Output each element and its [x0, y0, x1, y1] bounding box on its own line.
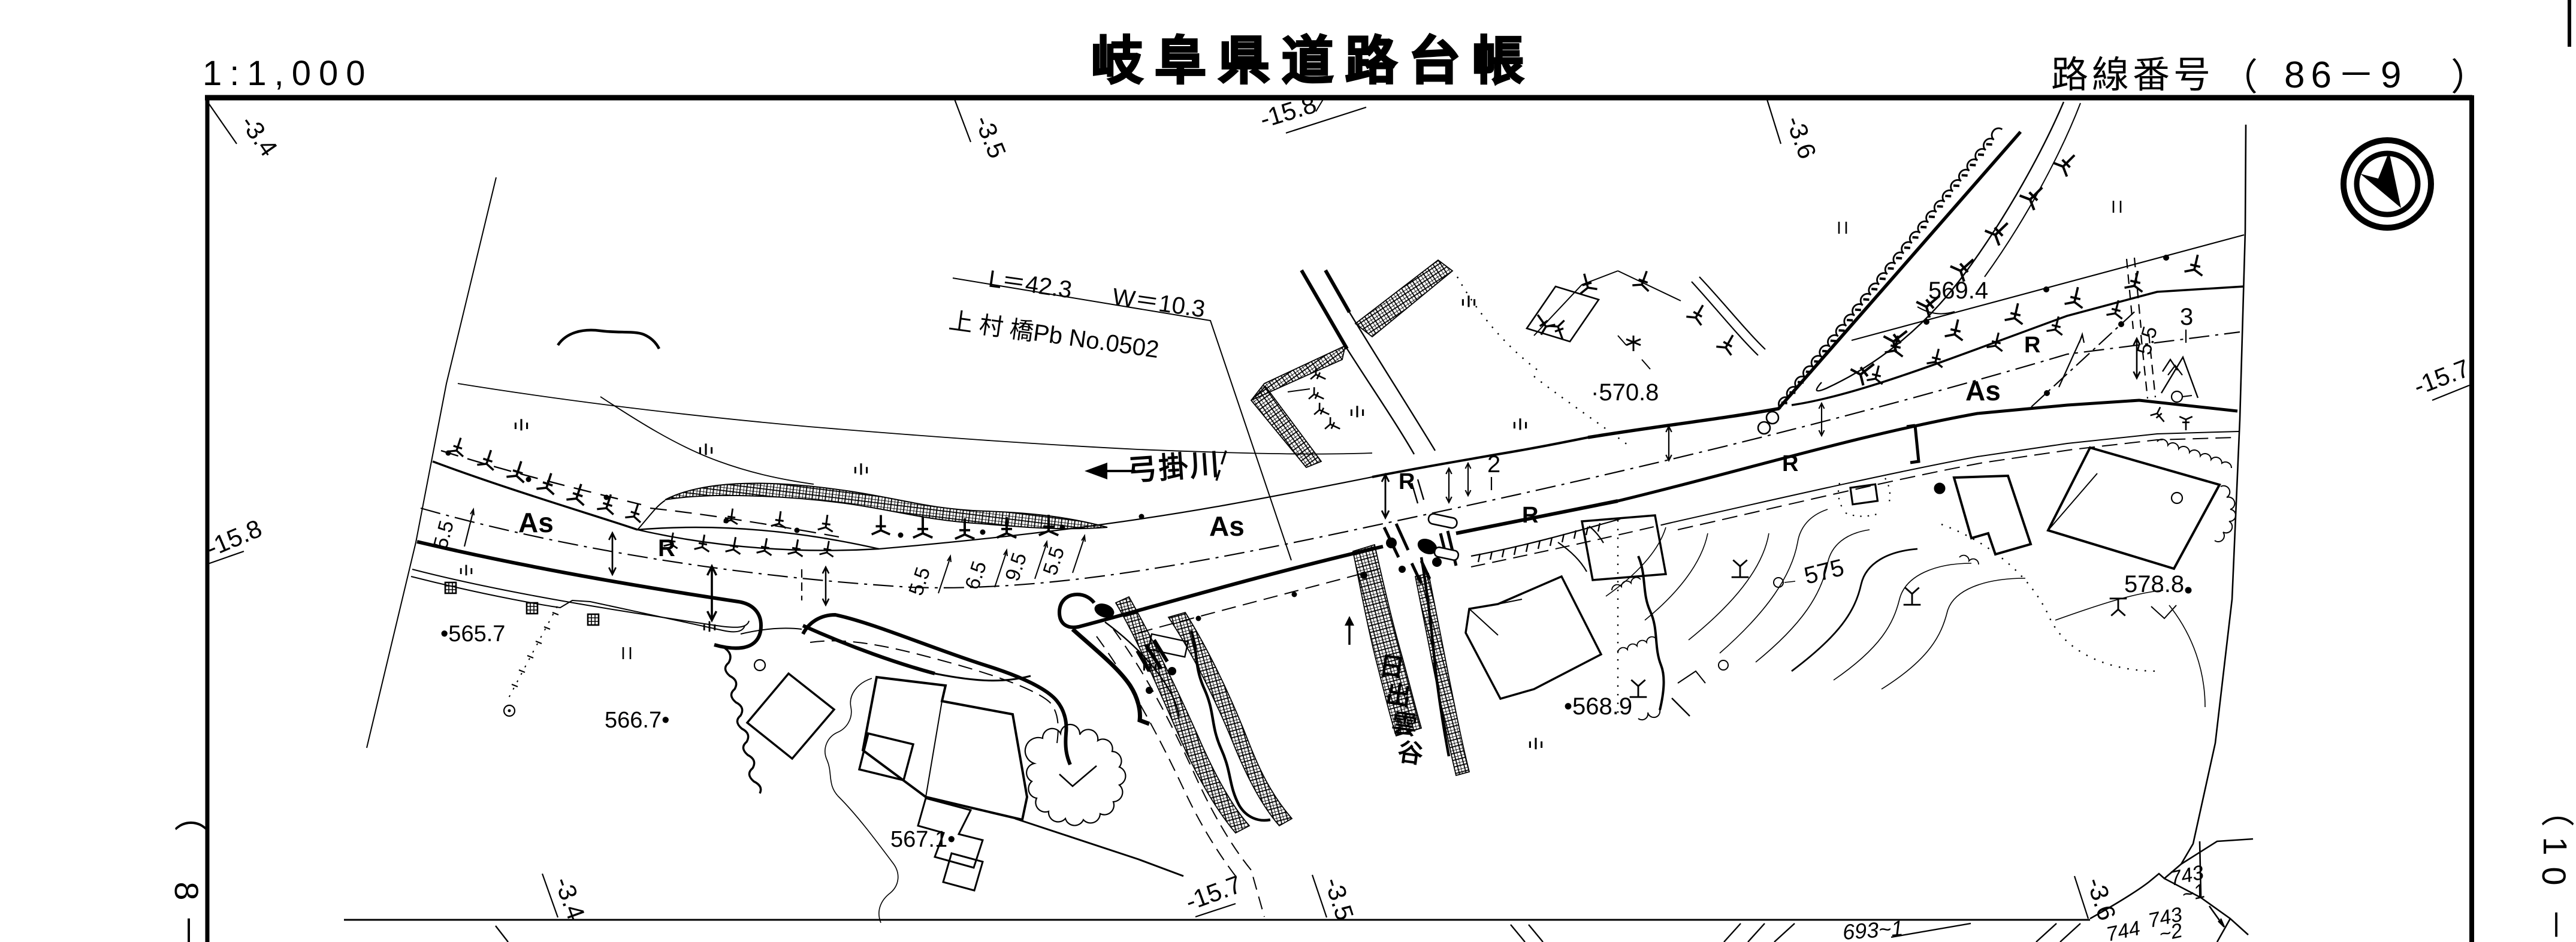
svg-text:578.8: 578.8 — [2124, 571, 2184, 597]
svg-text:－: － — [169, 914, 207, 942]
svg-text:1:1,000: 1:1,000 — [203, 54, 373, 93]
svg-text:雲: 雲 — [1390, 708, 1419, 739]
svg-text:3: 3 — [2180, 304, 2193, 330]
svg-text:~2: ~2 — [2157, 919, 2185, 942]
svg-text:2: 2 — [1487, 451, 1500, 478]
svg-text:As: As — [518, 507, 554, 538]
svg-text:0: 0 — [2535, 866, 2573, 885]
svg-text:出: 出 — [1384, 680, 1413, 711]
svg-text:弓掛川: 弓掛川 — [1127, 448, 1222, 487]
svg-text:R: R — [2024, 333, 2040, 358]
svg-text:谷: 谷 — [1396, 737, 1425, 768]
svg-text:~1: ~1 — [2180, 880, 2207, 907]
svg-text:86－9: 86－9 — [2284, 55, 2407, 96]
svg-text:（: （ — [2221, 57, 2258, 98]
svg-text:R: R — [1782, 451, 1798, 476]
svg-text:566.7•: 566.7• — [605, 708, 669, 733]
svg-text:As: As — [1209, 511, 1245, 542]
svg-text:（: （ — [171, 798, 209, 832]
svg-text:岐阜県道路台帳: 岐阜県道路台帳 — [1091, 32, 1536, 90]
svg-text:1: 1 — [2536, 837, 2574, 855]
svg-text:R: R — [1522, 503, 1538, 528]
svg-text:•568.9: •568.9 — [1564, 693, 1632, 720]
svg-text:）: ） — [2451, 57, 2488, 98]
svg-text:As: As — [1965, 375, 2001, 406]
svg-text:R: R — [658, 535, 675, 561]
svg-text:·570.8: ·570.8 — [1591, 379, 1659, 406]
svg-text:（: （ — [2538, 793, 2575, 827]
svg-text:路線番号: 路線番号 — [2051, 55, 2214, 96]
svg-text:693~1: 693~1 — [1842, 916, 1904, 942]
svg-text:－: － — [2536, 908, 2574, 941]
svg-text:R: R — [1399, 469, 1415, 494]
svg-text:569.4: 569.4 — [1928, 277, 1988, 304]
svg-text:•565.7: •565.7 — [440, 621, 505, 647]
svg-text:8: 8 — [168, 881, 206, 900]
svg-text:567.1•: 567.1• — [890, 827, 955, 852]
svg-text:日: 日 — [1378, 651, 1406, 682]
